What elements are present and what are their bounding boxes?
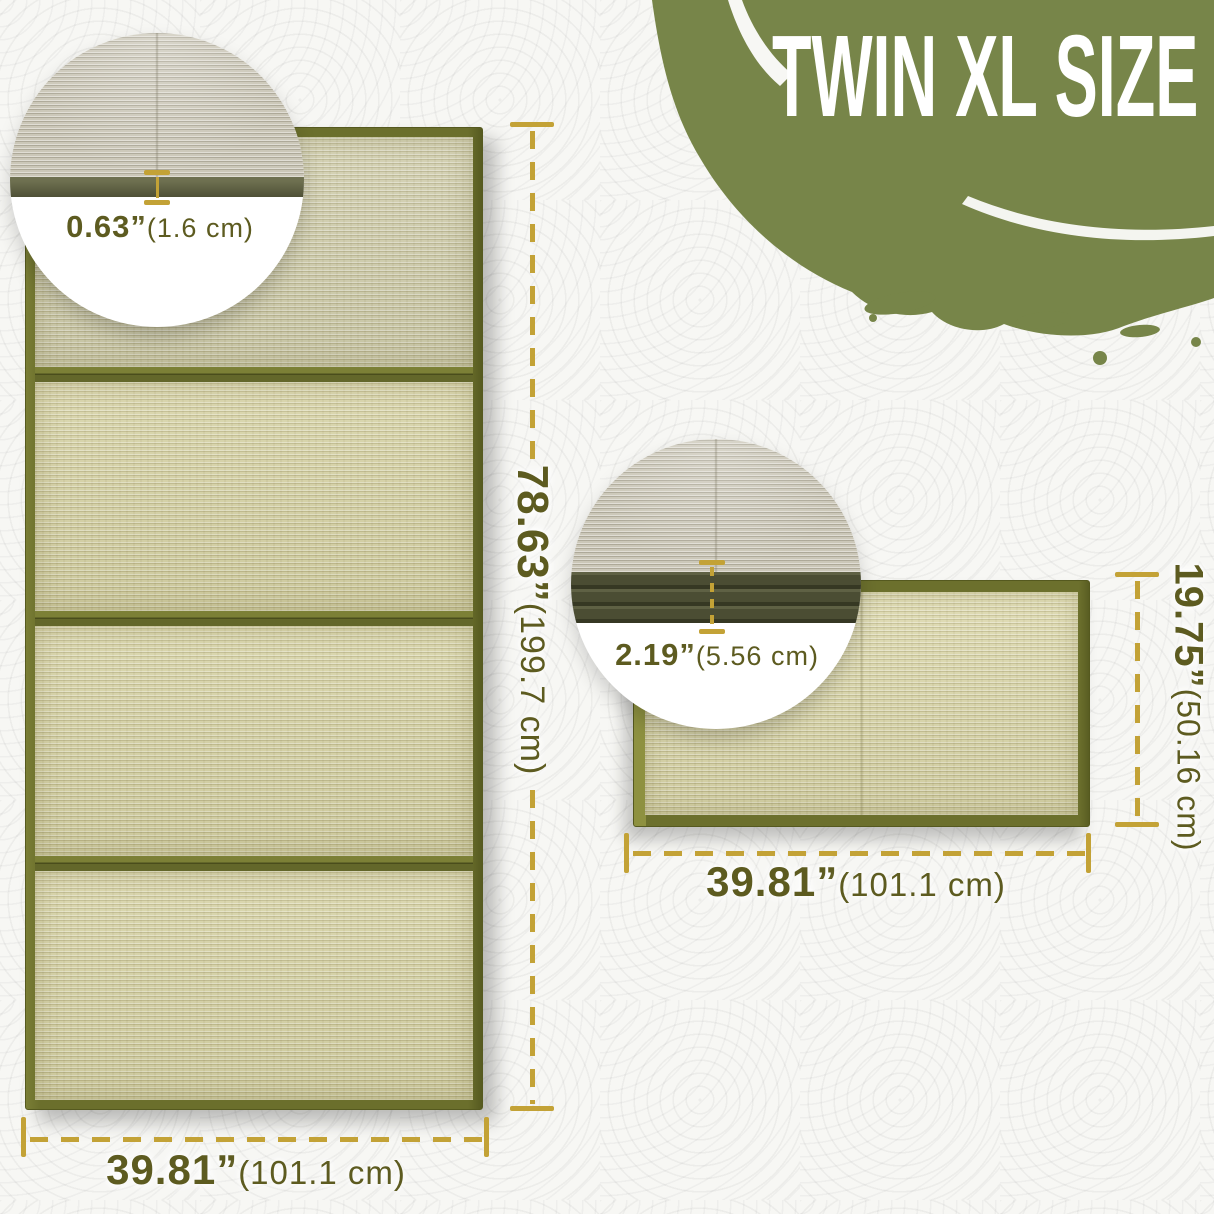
width-dim-right-tick	[484, 1117, 489, 1157]
thickness-inches: 0.63”	[66, 209, 147, 244]
folded-height-cm: (50.16 cm)	[1171, 689, 1207, 852]
folded-edge-texture	[571, 439, 861, 572]
unfolded-width-inches: 39.81”	[106, 1146, 238, 1193]
thickness-line	[156, 177, 159, 198]
mat-panel-3	[35, 626, 473, 856]
folded-width-inches: 39.81”	[706, 858, 838, 905]
folded-thickness-line	[710, 567, 714, 627]
folded-thickness-cm: (5.56 cm)	[696, 641, 819, 671]
folded-width-right-tick	[1086, 833, 1091, 873]
folded-thickness-inches: 2.19”	[615, 637, 696, 672]
unfolded-width-cm: (101.1 cm)	[238, 1154, 406, 1191]
mat-edge-texture	[10, 33, 304, 177]
folded-height-dim-line	[1135, 581, 1140, 821]
length-dim-bottom-tick	[510, 1106, 554, 1111]
thickness-bottom-tick	[144, 200, 170, 205]
folded-height-inches: 19.75”	[1167, 562, 1211, 688]
folded-thickness-top-tick	[699, 560, 725, 565]
folded-thickness-bottom-tick	[699, 629, 725, 634]
mat-panel-2	[35, 382, 473, 612]
length-dim-line-lower	[530, 790, 535, 1104]
folded-edge-layers	[571, 572, 861, 623]
width-dim-line	[30, 1137, 482, 1142]
folded-width-label: 39.81”(101.1 cm)	[706, 858, 1006, 906]
thickness-detail-inset: 0.63”(1.6 cm)	[10, 33, 304, 327]
mat-fold-divider	[35, 611, 473, 626]
length-dim-top-tick	[510, 122, 554, 127]
width-dim-left-tick	[21, 1117, 26, 1157]
folded-height-bottom-tick	[1115, 822, 1159, 827]
thickness-top-tick	[144, 170, 170, 175]
folded-height-label: 19.75”(50.16 cm)	[1166, 562, 1211, 851]
mat-fold-divider	[35, 856, 473, 871]
unfolded-length-inches: 78.63”	[508, 465, 557, 603]
folded-height-top-tick	[1115, 572, 1159, 577]
folded-width-left-tick	[624, 833, 629, 873]
folded-width-dim-line	[633, 851, 1085, 856]
unfolded-length-label: 78.63”(199.7 cm)	[507, 465, 557, 776]
unfolded-width-label: 39.81”(101.1 cm)	[106, 1146, 406, 1194]
folded-thickness-label: 2.19”(5.56 cm)	[615, 637, 819, 673]
thickness-cm: (1.6 cm)	[147, 213, 254, 243]
mat-panel-4	[35, 871, 473, 1101]
mat-fold-divider	[35, 367, 473, 382]
length-dim-line-upper	[530, 131, 535, 459]
folded-thickness-detail-inset: 2.19”(5.56 cm)	[571, 439, 861, 729]
size-title: TWIN XL SIZE	[772, 10, 1198, 143]
tatami-mat-size-infographic: TWIN XL SIZE 78.63”(199.7 cm) 39.81”(101…	[0, 0, 1214, 1214]
thickness-label: 0.63”(1.6 cm)	[66, 209, 254, 245]
unfolded-length-cm: (199.7 cm)	[513, 603, 551, 776]
folded-width-cm: (101.1 cm)	[838, 866, 1006, 903]
